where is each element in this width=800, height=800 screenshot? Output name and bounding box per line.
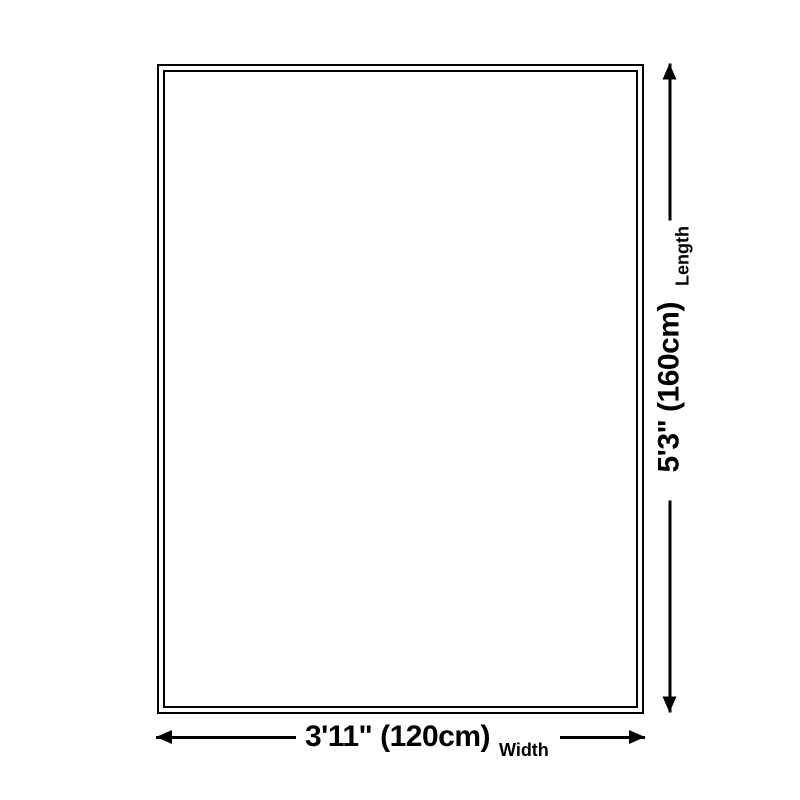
width-dimension-line-left [156,736,296,739]
size-diagram: 3'11" (120cm) Width 5'3" (160cm) Length [0,0,800,800]
arrow-up-icon [663,64,677,80]
rug-outline [157,64,644,714]
length-label: Length [674,226,692,286]
width-dimension-line-right [560,736,645,739]
width-dimension: 3'11" (120cm) Width [156,707,645,767]
arrow-right-icon [629,730,645,744]
arrow-left-icon [156,730,172,744]
length-dimension-line-bottom [668,501,671,713]
length-dimension: 5'3" (160cm) Length [640,64,700,713]
length-value: 5'3" (160cm) [655,302,685,472]
rug-inner-border [163,70,638,708]
width-label: Width [499,741,549,759]
width-value: 3'11" (120cm) [305,722,490,752]
length-dimension-line-top [668,64,671,221]
arrow-down-icon [663,697,677,713]
